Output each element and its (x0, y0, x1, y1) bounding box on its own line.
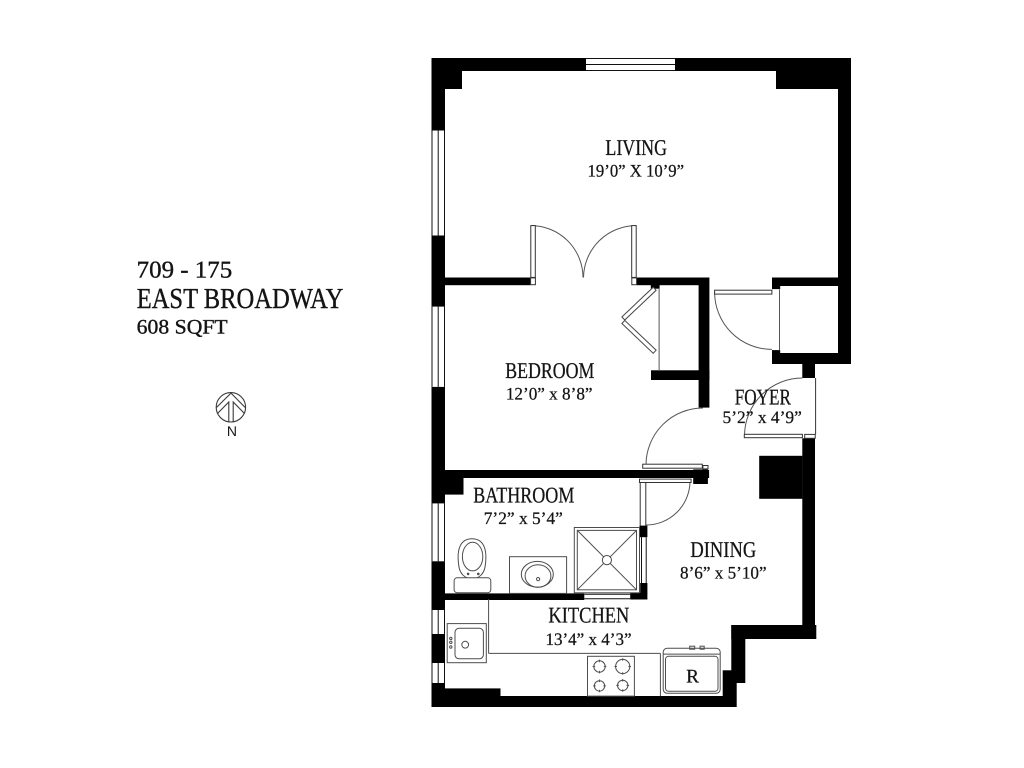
svg-text:N: N (227, 423, 237, 439)
svg-text:19’0” X 10’9”: 19’0” X 10’9” (588, 161, 685, 181)
svg-text:DINING: DINING (690, 537, 756, 562)
svg-text:BEDROOM: BEDROOM (505, 358, 594, 383)
svg-text:FOYER: FOYER (735, 385, 791, 410)
svg-text:LIVING: LIVING (605, 135, 667, 160)
svg-text:608 SQFT: 608 SQFT (137, 317, 228, 339)
svg-text:13’4” x 4’3”: 13’4” x 4’3” (545, 629, 631, 649)
svg-text:7’2” x 5’4”: 7’2” x 5’4” (484, 508, 563, 528)
svg-text:R: R (686, 666, 699, 687)
svg-text:709 - 175: 709 - 175 (137, 258, 233, 284)
svg-text:12’0” x 8’8”: 12’0” x 8’8” (506, 384, 593, 404)
svg-text:KITCHEN: KITCHEN (548, 603, 629, 628)
svg-text:8’6” x 5’10”: 8’6” x 5’10” (680, 562, 767, 582)
svg-text:EAST BROADWAY: EAST BROADWAY (137, 283, 344, 315)
svg-text:5’2” x 4’9”: 5’2” x 4’9” (723, 407, 802, 427)
svg-text:BATHROOM: BATHROOM (473, 483, 574, 508)
